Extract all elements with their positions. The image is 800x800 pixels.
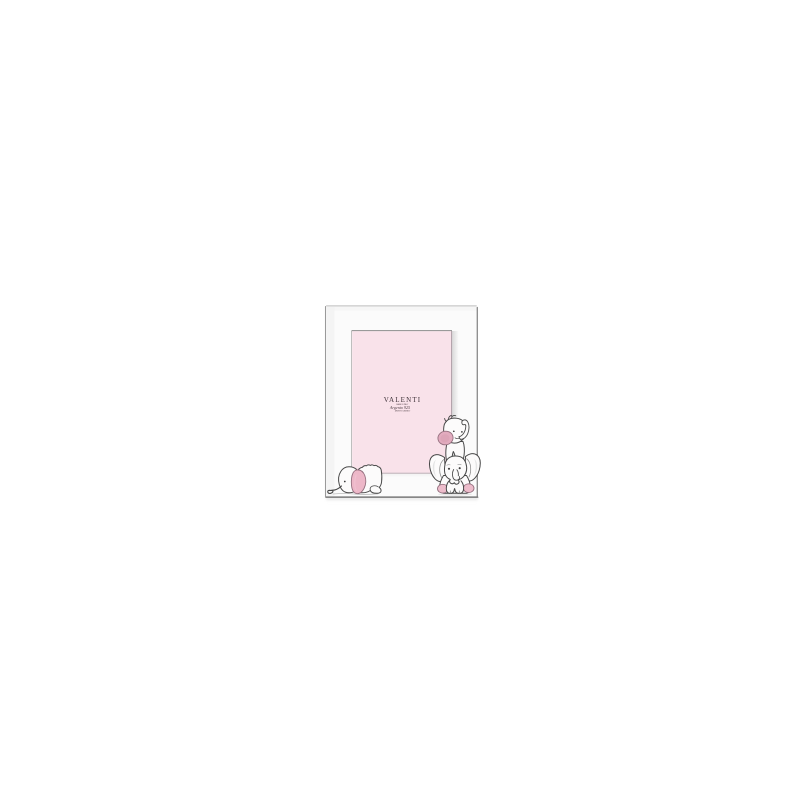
svg-text:VALENTI: VALENTI xyxy=(384,396,421,404)
svg-text:Argento 925: Argento 925 xyxy=(389,405,410,410)
